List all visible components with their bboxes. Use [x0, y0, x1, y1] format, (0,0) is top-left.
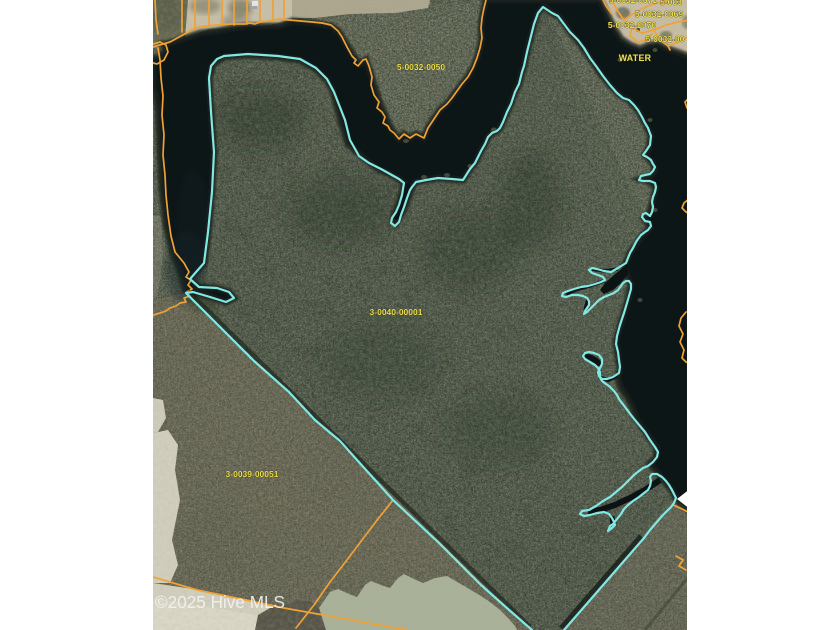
- svg-text:5-0032-0070: 5-0032-0070: [608, 20, 656, 30]
- svg-text:3-0040-00001: 3-0040-00001: [370, 307, 423, 317]
- svg-text:5-003: 5-003: [660, 0, 682, 7]
- svg-text:5-0032-0069: 5-0032-0069: [635, 9, 683, 19]
- svg-text:5-0032-00: 5-0032-00: [646, 34, 685, 44]
- svg-text:WATER: WATER: [619, 53, 652, 63]
- svg-text:5-0032-0071: 5-0032-0071: [609, 0, 657, 5]
- svg-text:5-0032-0050: 5-0032-0050: [397, 62, 445, 72]
- svg-text:3-0039-00051: 3-0039-00051: [226, 469, 279, 479]
- svg-text:©2025 Hive MLS: ©2025 Hive MLS: [155, 592, 285, 612]
